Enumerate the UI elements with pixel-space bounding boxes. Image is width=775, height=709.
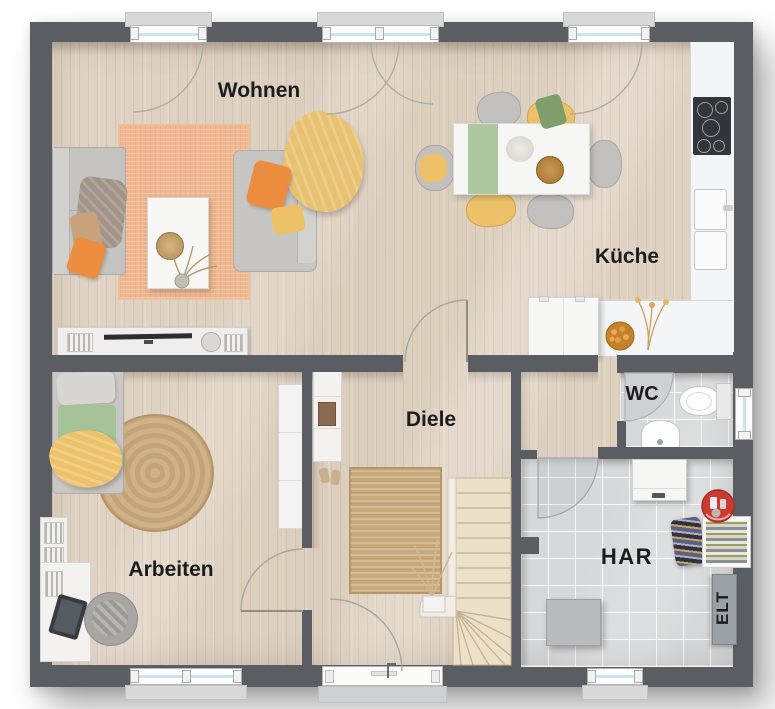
room-label-wohnen: Wohnen xyxy=(194,79,324,102)
wall xyxy=(617,355,733,373)
kitchen-flowers-icon xyxy=(628,292,672,352)
dining-chair xyxy=(526,193,575,230)
cleaning-caddy-icon xyxy=(692,480,740,528)
hall-shelf xyxy=(313,363,342,462)
toilet xyxy=(679,386,719,416)
sink-basin xyxy=(694,189,727,230)
window xyxy=(568,25,650,43)
dining-chair xyxy=(415,145,455,191)
wall xyxy=(511,372,521,665)
wall xyxy=(617,421,626,447)
kitchen-cabinet xyxy=(528,297,599,357)
door-handle xyxy=(387,663,389,678)
room-label-kueche: Küche xyxy=(565,245,689,268)
room-label-diele: Diele xyxy=(380,408,482,431)
wall xyxy=(598,447,733,459)
pillow xyxy=(270,204,306,236)
tv-sideboard xyxy=(57,327,248,357)
tall-shelf xyxy=(278,384,304,529)
chimney-block xyxy=(521,537,539,554)
entry-step xyxy=(318,686,447,703)
room-label-arbeiten: Arbeiten xyxy=(100,558,242,581)
cooktop xyxy=(693,97,731,155)
window xyxy=(587,668,643,685)
wc-window xyxy=(735,388,753,440)
desk xyxy=(40,562,91,662)
room-label-elt: ELT xyxy=(714,578,734,638)
wall xyxy=(302,610,312,665)
wall xyxy=(302,372,312,548)
utility-box xyxy=(546,599,601,646)
window-sill xyxy=(125,685,247,700)
dining-chair xyxy=(587,140,622,188)
dining-table xyxy=(453,123,590,195)
dried-plant-icon xyxy=(165,240,221,292)
wc-sink xyxy=(641,420,680,450)
window xyxy=(130,25,207,43)
window xyxy=(130,668,242,685)
desk-chair xyxy=(84,592,138,646)
sink-basin xyxy=(694,231,727,270)
hall-rug xyxy=(349,467,442,594)
washing-machine xyxy=(632,459,687,501)
cistern xyxy=(716,383,732,420)
wall xyxy=(52,355,403,372)
faucet xyxy=(723,205,733,211)
room-label-wc: WC xyxy=(616,383,668,405)
window-sill xyxy=(582,685,648,700)
room-label-har: HAR xyxy=(584,545,670,569)
window xyxy=(322,25,439,43)
wall xyxy=(521,450,537,459)
wall xyxy=(468,355,598,372)
entry-door xyxy=(322,666,443,686)
floor-plan: Wohnen Küche Diele Arbeiten WC HAR ELT xyxy=(0,0,775,709)
